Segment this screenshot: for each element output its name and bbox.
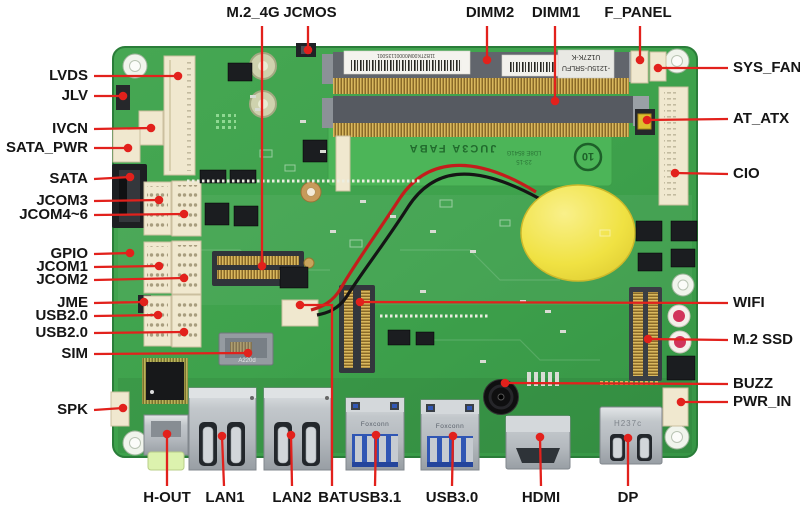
chip — [667, 356, 695, 380]
callout-usb2-0-b: USB2.0 — [35, 325, 88, 341]
callout-bat: BAT — [318, 490, 348, 506]
dp-marking-text: H237c — [614, 419, 642, 428]
callout-buzz: BUZZ — [733, 376, 773, 392]
buzzer — [484, 380, 519, 415]
callout-dimm1: DIMM1 — [532, 5, 580, 21]
callout-sata-pwr: SATA_PWR — [6, 140, 88, 156]
usb2-headers — [144, 295, 201, 347]
ethernet-chip — [142, 358, 188, 404]
soic-chip — [228, 63, 252, 81]
callout-lvds: LVDS — [49, 68, 88, 84]
cpu-label-line1: U1Z7K-K — [571, 53, 600, 60]
callout-cio: CIO — [733, 166, 760, 182]
callout-lan2: LAN2 — [272, 490, 311, 506]
module-rev-text: LD8E 8541G — [506, 149, 541, 155]
callout-m2-ssd: M.2 SSD — [733, 332, 793, 348]
callout-jcom4-6: JCOM4~6 — [19, 207, 88, 223]
callout-usb2-0-a: USB2.0 — [35, 308, 88, 324]
callout-sata: SATA — [49, 171, 88, 187]
callout-hdmi: HDMI — [522, 490, 560, 506]
cpu-sticker: U1Z7K-K -1215U-SRLFU — [558, 50, 614, 78]
callout-usb3-0: USB3.0 — [426, 490, 479, 506]
callout-wifi: WIFI — [733, 295, 765, 311]
callout-usb3-1: USB3.1 — [349, 490, 402, 506]
callout-dp: DP — [618, 490, 639, 506]
diagram-canvas: .cream{fill:#f0e8cf;stroke:#cbbf9f;strok… — [0, 0, 800, 512]
gpio-com-headers — [144, 241, 201, 294]
callout-dimm2: DIMM2 — [466, 5, 514, 21]
callout-ivcn: IVCN — [52, 121, 88, 137]
callout-sim: SIM — [61, 346, 88, 362]
callout-jcmos: JCMOS — [283, 5, 336, 21]
sim-slot: A220d — [219, 333, 273, 365]
cpu-label-line2: -1215U-SRLFU — [562, 64, 610, 71]
callout-m2-4g: M.2_4G — [226, 5, 279, 21]
lan2-port — [264, 388, 331, 470]
callout-h-out: H-OUT — [143, 490, 191, 506]
cio-connector — [659, 87, 688, 205]
callout-jlv: JLV — [62, 88, 88, 104]
callout-jcom2: JCOM2 — [36, 272, 88, 288]
module-name-text: JUC3A FABA — [408, 142, 497, 154]
cmos-battery — [521, 185, 635, 281]
recycle-number: 10 — [582, 150, 594, 162]
sim-marking-text: A220d — [238, 358, 255, 364]
callout-pwr-in: PWR_IN — [733, 394, 791, 410]
callout-lan1: LAN1 — [205, 490, 244, 506]
pad-grid — [214, 112, 236, 129]
sticker-serial-text: 11B2TK00M0000113S001 — [377, 52, 435, 58]
small-connector — [336, 136, 350, 191]
chip — [280, 267, 308, 288]
hdmi-port — [506, 416, 570, 469]
callout-sys-fan: SYS_FAN — [733, 60, 800, 76]
callout-at-atx: AT_ATX — [733, 111, 789, 127]
usb30-brand-text: Foxconn — [436, 423, 464, 430]
callout-f-panel: F_PANEL — [604, 5, 671, 21]
usb31-brand-text: Foxconn — [361, 421, 389, 428]
pwr-in-connector — [663, 388, 688, 426]
com-headers-upper — [144, 181, 201, 236]
board-photo: .cream{fill:#f0e8cf;stroke:#cbbf9f;strok… — [0, 0, 800, 512]
module-date-text: 23-15 — [516, 158, 532, 164]
callout-spk: SPK — [57, 402, 88, 418]
